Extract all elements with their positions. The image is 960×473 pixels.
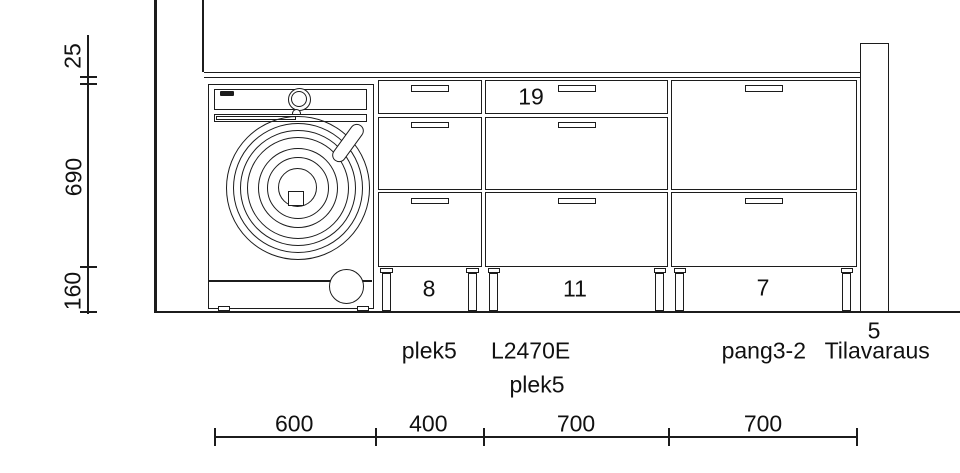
label-l2470e: L2470E [491,339,570,362]
label-plek5-a: plek5 [402,340,457,363]
washer-drum-window [288,191,305,207]
dimension-tick [80,76,97,78]
dim-label-600: 600 [275,412,313,435]
floor-line [154,311,960,313]
cabinet-leg-stem [468,273,477,311]
wall-line [154,0,157,312]
drawer-number-11: 11 [563,277,587,300]
dim-label-700-a: 700 [557,412,595,435]
drawer-handle [411,122,449,129]
end-panel-line [202,0,204,72]
washing-machine [208,84,375,309]
space-reservation-column [860,43,889,312]
dimension-tick [80,83,97,85]
drawer-handle [558,198,596,205]
washer-brand-logo [220,91,234,96]
drawer-number-8: 8 [423,278,436,301]
cabinet-c-drawer-1 [671,80,857,190]
washer-foot [218,306,230,311]
washer-filter-cap [329,269,364,304]
countertop [204,72,861,79]
drawer-number-7: 7 [757,277,770,300]
drawer-handle [745,85,783,92]
dimension-tick [856,428,858,446]
label-plek5-b: plek5 [510,373,565,396]
dimension-tick [375,428,377,446]
dimension-tick [483,428,485,446]
drawer-number-19: 19 [518,86,544,109]
drawer-handle [411,198,449,205]
cabinet-leg-stem [842,273,851,311]
dim-label-690: 690 [63,158,86,196]
dim-label-160: 160 [61,272,84,310]
drawer-handle [745,198,783,205]
drawer-handle [411,85,449,92]
cabinet-leg-stem [489,273,498,311]
drawer-handle [558,122,596,129]
dim-label-400: 400 [409,412,447,435]
label-pang3-2: pang3-2 [722,339,806,362]
label-tilavaraus: Tilavaraus [825,339,930,362]
dimension-tick [214,428,216,446]
drawer-handle [558,85,596,92]
cabinet-leg-stem [655,273,664,311]
kitchen-elevation-drawing: 19 8 11 7 plek5 L2470E plek5 pang3-2 5 T… [0,0,960,473]
dim-label-700-b: 700 [744,412,782,435]
washer-knob-center [291,91,307,107]
cabinet-leg-stem [382,273,391,311]
bottom-dimension-line [215,436,858,438]
dim-label-25: 25 [62,43,85,69]
cabinet-leg-stem [675,273,684,311]
dimension-tick [80,311,97,313]
washer-foot [357,306,369,311]
dimension-tick [80,266,97,268]
dimension-tick [668,428,670,446]
